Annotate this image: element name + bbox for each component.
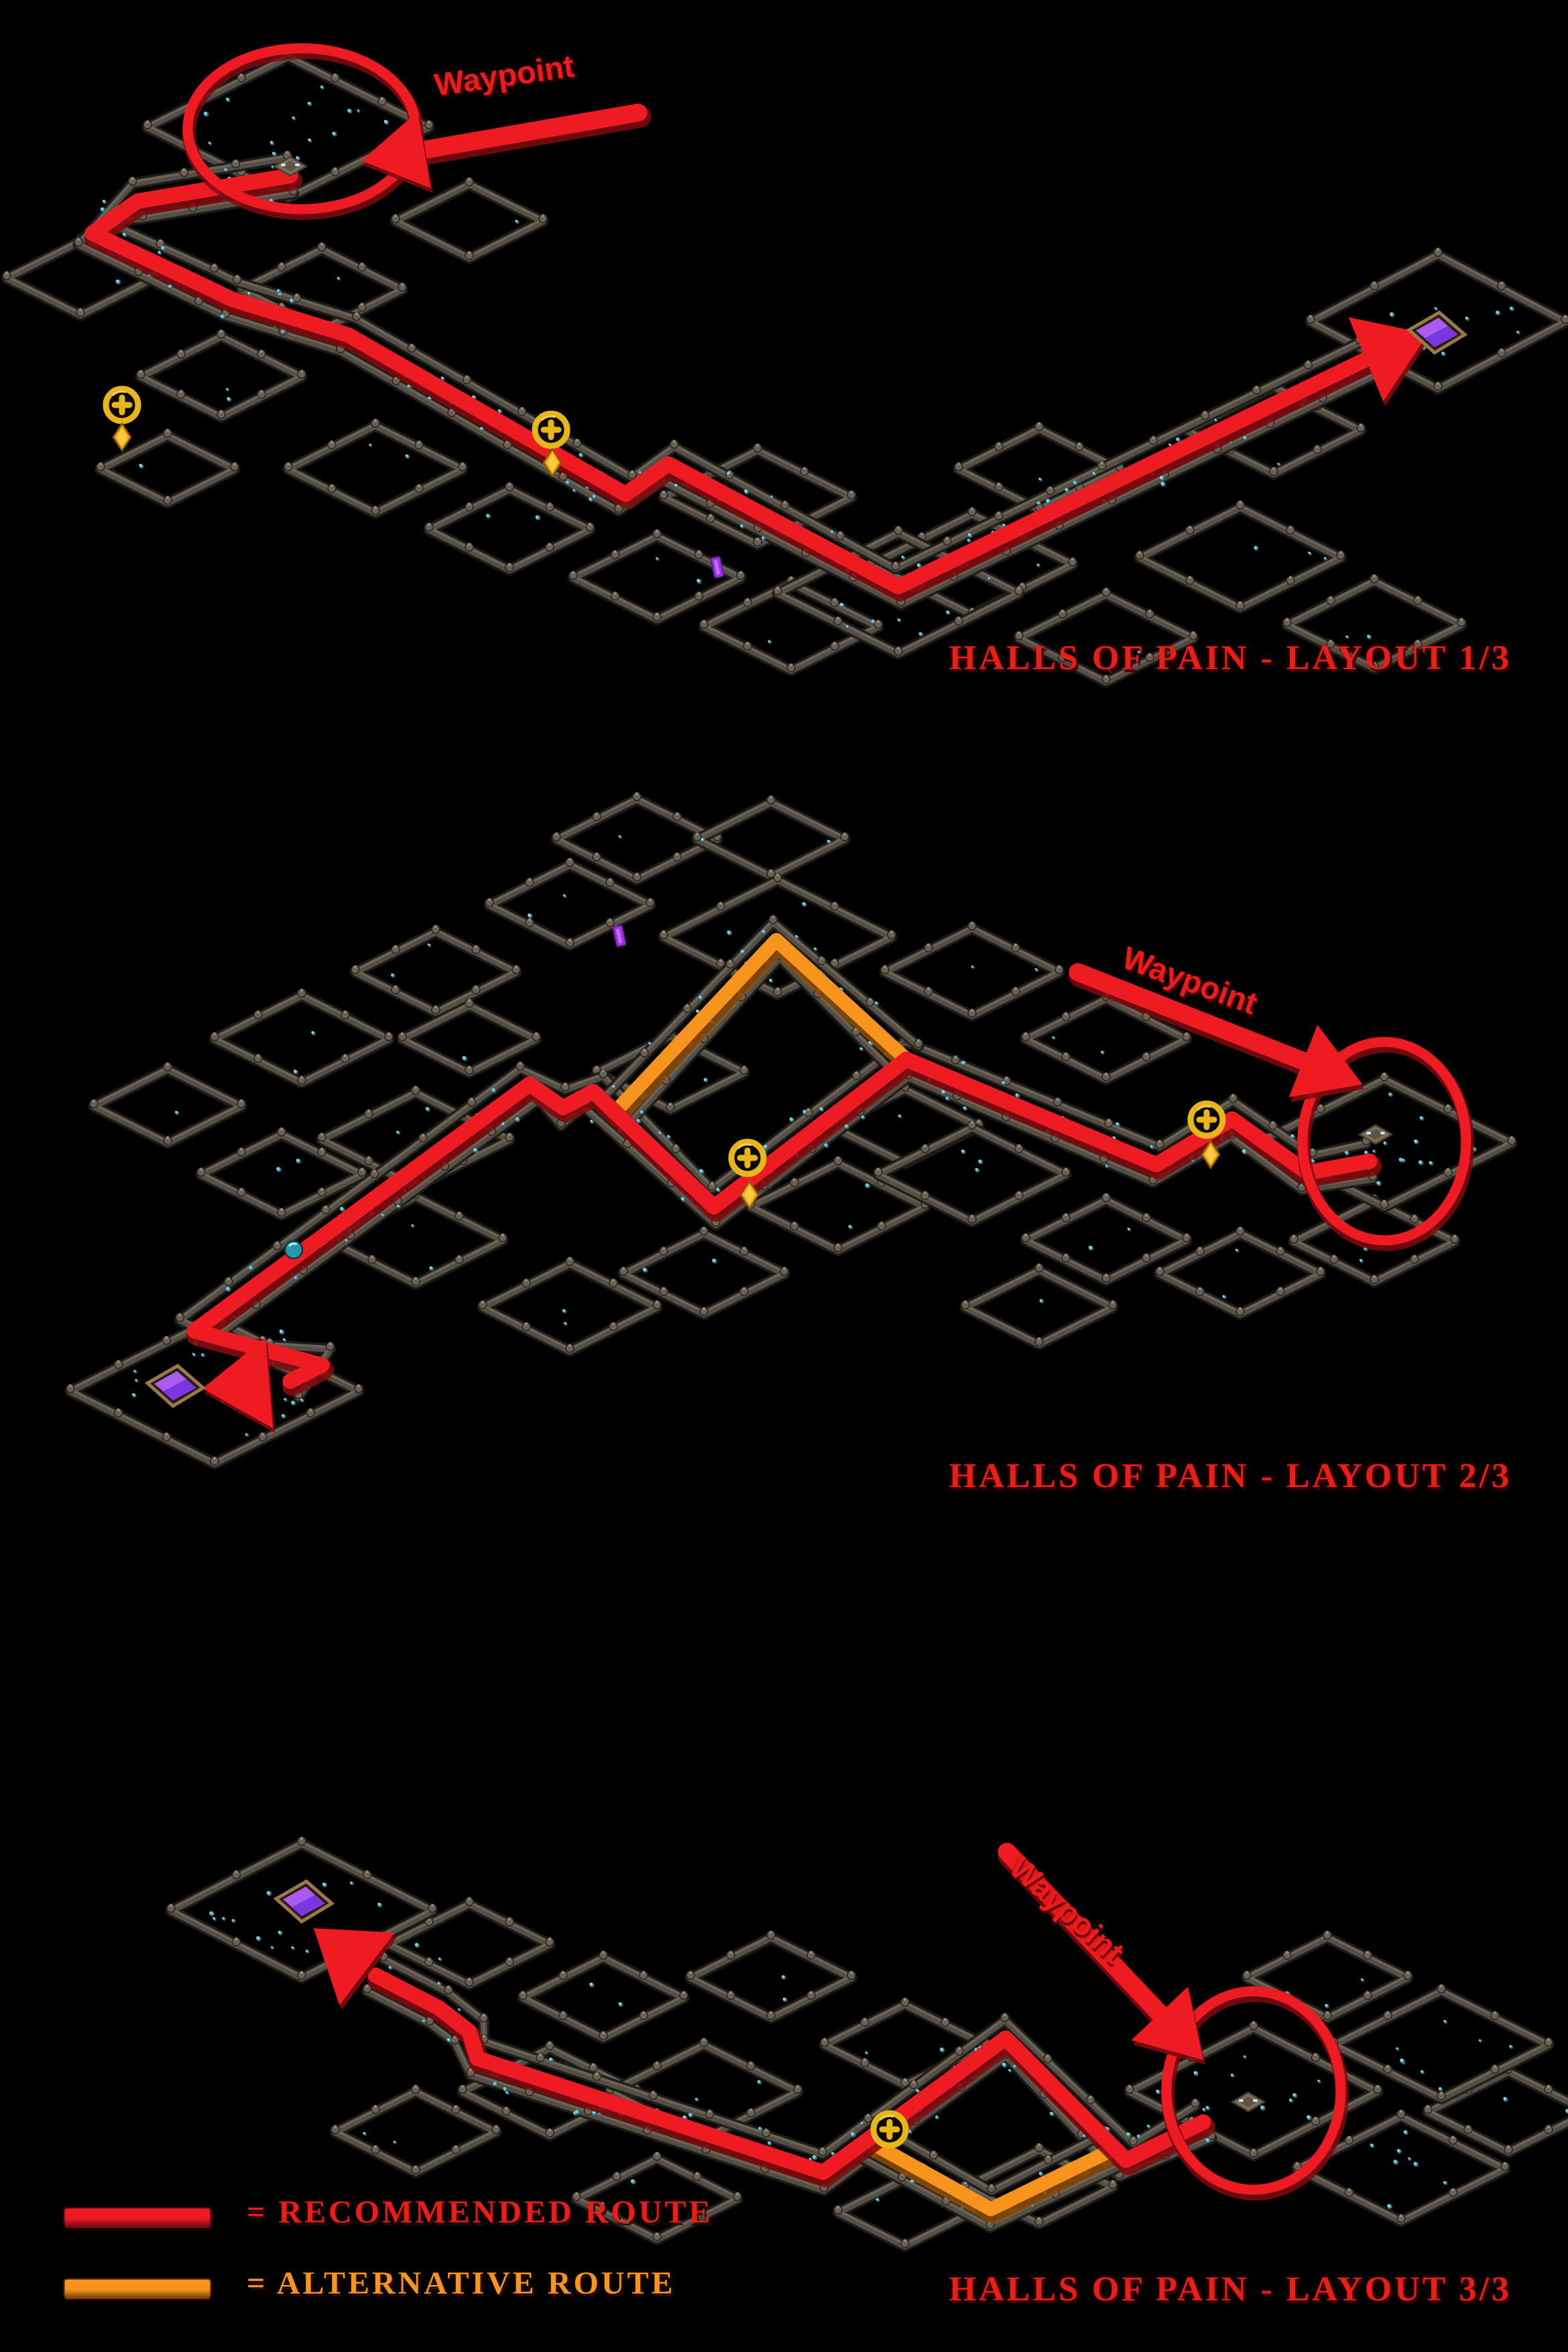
gold-diamond-icon bbox=[113, 424, 131, 451]
wall-pillar-tip bbox=[1504, 2162, 1506, 2165]
wall-segment-shadow bbox=[288, 426, 463, 513]
maps-canvas bbox=[0, 0, 1568, 2352]
wall-pillar-tip bbox=[387, 1033, 390, 1035]
wall-pillar-tip bbox=[602, 1951, 605, 1954]
wall-pillar-tip bbox=[1314, 2053, 1317, 2056]
wall-pillar-tip bbox=[475, 945, 477, 948]
wall-pillar-tip bbox=[131, 177, 133, 180]
wall-pillar-tip bbox=[877, 1168, 880, 1171]
wall-pillar-tip bbox=[1311, 1149, 1314, 1151]
wall-pillar-tip bbox=[213, 263, 215, 266]
wall-pillar-tip bbox=[1158, 1267, 1161, 1270]
wall-pillar-tip bbox=[1333, 1255, 1335, 1258]
wall-pillar-tip bbox=[971, 1215, 973, 1218]
wall-pillar-tip bbox=[1148, 609, 1151, 612]
wall-pillar-tip bbox=[93, 1100, 95, 1102]
wall-pillar-tip bbox=[286, 151, 288, 154]
wall-pillar-tip bbox=[1239, 1307, 1242, 1310]
wall-pillar-tip bbox=[166, 496, 169, 499]
wall-pillar-tip bbox=[508, 563, 511, 566]
wall-pillar-tip bbox=[1386, 2065, 1389, 2068]
wall-pillar-tip bbox=[743, 1066, 745, 1069]
shrine-icon bbox=[871, 2111, 908, 2148]
wall-pillar-tip bbox=[320, 243, 323, 245]
wall-pillar-tip bbox=[1360, 424, 1362, 426]
wall-pillar-tip bbox=[729, 1951, 732, 1954]
wall-pillar-tip bbox=[602, 1069, 605, 1072]
wall-segment-shadow bbox=[396, 184, 543, 258]
wall-pillar-tip bbox=[964, 1301, 967, 1303]
wall-pillar-tip bbox=[77, 238, 80, 241]
wall-pillar-tip bbox=[676, 853, 678, 856]
map-layout-3 bbox=[167, 1837, 1568, 2247]
wall-segment bbox=[523, 1958, 684, 2038]
wall-pillar-tip bbox=[697, 592, 700, 595]
wall-segment-shadow bbox=[402, 1006, 536, 1073]
wall-pillar-tip bbox=[944, 2018, 947, 2021]
wall-segment-top bbox=[396, 182, 543, 256]
wall-pillar-tip bbox=[609, 919, 611, 921]
wall-pillar-tip bbox=[843, 833, 846, 835]
wall-pillar-tip bbox=[1189, 526, 1191, 528]
wall-pillar-tip bbox=[1383, 1200, 1386, 1203]
wall-pillar-tip bbox=[1065, 1214, 1067, 1216]
wall-pillar-tip bbox=[234, 160, 237, 162]
wall-pillar-tip bbox=[1038, 422, 1040, 425]
wall-pillar-tip bbox=[1239, 1227, 1242, 1230]
wall-pillar-tip bbox=[1289, 576, 1292, 579]
wall-pillar-tip bbox=[589, 523, 591, 526]
wall-pillar-tip bbox=[1366, 1991, 1369, 1994]
wall-pillar-tip bbox=[300, 1837, 303, 1840]
wall-pillar-tip bbox=[548, 2129, 551, 2131]
wall-pillar-tip bbox=[820, 957, 823, 959]
wall-pillar-tip bbox=[233, 463, 236, 465]
wall-pillar-tip bbox=[736, 2192, 739, 2195]
map3-title: HALLS OF PAIN - LAYOUT 3/3 bbox=[949, 2270, 1512, 2309]
wall-pillar-tip bbox=[793, 1178, 796, 1181]
wall-pillar-tip bbox=[770, 870, 772, 872]
wall-pillar-tip bbox=[1185, 1033, 1188, 1035]
wall-pillar-tip bbox=[1376, 2085, 1379, 2088]
wall-pillar-tip bbox=[320, 1148, 323, 1151]
wall-pillar-tip bbox=[1413, 1215, 1416, 1218]
wall-segment bbox=[215, 996, 389, 1083]
wall-pillar-tip bbox=[971, 508, 973, 510]
wall-pillar-tip bbox=[837, 2206, 839, 2209]
wall-segment-top bbox=[141, 335, 302, 415]
wall-pillar-tip bbox=[320, 1133, 323, 1136]
wall-pillar-tip bbox=[1038, 1338, 1040, 1340]
wall-pillar-tip bbox=[823, 2038, 826, 2041]
wall-pillar-tip bbox=[365, 1871, 368, 1873]
wall-pillar-tip bbox=[1252, 2149, 1255, 2152]
wall-pillar-tip bbox=[240, 1148, 243, 1151]
wall-pillar-tip bbox=[912, 2080, 915, 2083]
wall-pillar-tip bbox=[1038, 2217, 1040, 2220]
wall-pillar-tip bbox=[592, 2063, 595, 2066]
wall-pillar-tip bbox=[837, 1244, 839, 1246]
wall-pillar-tip bbox=[1316, 445, 1319, 448]
wall-pillar-tip bbox=[894, 562, 897, 565]
wall-pillar-tip bbox=[595, 2072, 598, 2075]
wall-pillar-tip bbox=[235, 1938, 237, 1940]
wall-pillar-tip bbox=[1494, 2011, 1496, 2014]
wall-pillar-tip bbox=[971, 1009, 973, 1012]
wall-segment-top bbox=[215, 994, 389, 1081]
wall-pillar-tip bbox=[927, 943, 930, 946]
wall-pillar-tip bbox=[595, 1066, 598, 1069]
alternative-route-swatch bbox=[64, 2278, 211, 2299]
stairs-icon bbox=[276, 1881, 332, 1922]
wall-pillar-tip bbox=[300, 1971, 303, 1974]
wall-pillar-tip bbox=[1447, 1168, 1449, 1171]
wall-pillar-tip bbox=[1329, 596, 1332, 599]
wall-pillar-tip bbox=[612, 1322, 615, 1325]
wall-pillar-tip bbox=[508, 1958, 511, 1960]
wall-pillar-tip bbox=[300, 1076, 303, 1079]
wall-pillar-tip bbox=[711, 1182, 713, 1185]
wall-pillar-tip bbox=[227, 1277, 230, 1280]
wall-pillar-tip bbox=[615, 2172, 618, 2175]
wall-pillar-tip bbox=[519, 1062, 522, 1065]
wall-pillar-tip bbox=[548, 543, 551, 546]
wall-pillar-tip bbox=[1145, 1254, 1148, 1256]
wall-pillar-tip bbox=[613, 550, 616, 553]
wall-segment bbox=[690, 1938, 851, 2018]
wall-pillar-tip bbox=[703, 2038, 705, 2041]
wall-pillar-tip bbox=[1451, 2188, 1454, 2191]
wall-pillar-tip bbox=[1199, 1247, 1201, 1250]
wall-pillar-tip bbox=[1314, 2117, 1317, 2119]
recommended-route-swatch bbox=[64, 2207, 211, 2228]
wall-pillar-tip bbox=[796, 2085, 799, 2088]
wall-pillar-tip bbox=[99, 463, 102, 465]
wall-segment-top bbox=[402, 1004, 536, 1071]
wall-pillar-tip bbox=[1246, 1971, 1248, 1974]
wall-pillar-tip bbox=[367, 1157, 370, 1159]
recommended-route-label: = RECOMMENDED ROUTE bbox=[247, 2194, 713, 2231]
wall-segment-top bbox=[878, 1126, 1066, 1220]
wall-pillar-tip bbox=[790, 577, 792, 579]
wall-segment-shadow bbox=[965, 1271, 1113, 1344]
wall-pillar-tip bbox=[568, 939, 571, 941]
wall-pillar-tip bbox=[703, 1307, 705, 1310]
wall-pillar-tip bbox=[927, 987, 930, 990]
wall-pillar-tip bbox=[662, 491, 665, 493]
wall-pillar-tip bbox=[656, 2152, 658, 2155]
teal-marker-icon bbox=[285, 1241, 302, 1258]
wall-segment bbox=[1140, 508, 1341, 608]
wall-pillar-tip bbox=[1347, 2136, 1350, 2139]
wall-pillar-tip bbox=[1111, 1301, 1114, 1303]
wall-pillar-tip bbox=[917, 1039, 920, 1042]
wall-segment bbox=[396, 184, 543, 258]
wall-pillar-tip bbox=[1406, 1971, 1409, 1974]
wall-pillar-tip bbox=[166, 429, 169, 432]
wall-pillar-tip bbox=[1100, 461, 1103, 464]
wall-pillar-tip bbox=[548, 503, 551, 506]
wall-pillar-tip bbox=[756, 444, 759, 447]
wall-pillar-tip bbox=[361, 1168, 363, 1171]
wall-pillar-tip bbox=[280, 263, 283, 266]
wall-pillar-tip bbox=[642, 2011, 645, 2014]
wall-pillar-tip bbox=[1279, 1247, 1282, 1250]
wall-pillar-tip bbox=[662, 1247, 665, 1250]
wall-segment-shadow bbox=[335, 2092, 496, 2172]
wall-pillar-tip bbox=[180, 390, 182, 393]
wall-pillar-tip bbox=[220, 330, 223, 333]
wall-pillar-tip bbox=[810, 1951, 812, 1954]
wall-pillar-tip bbox=[1046, 2054, 1049, 2057]
wall-pillar-tip bbox=[609, 878, 611, 881]
wall-pillar-tip bbox=[1192, 632, 1195, 634]
wall-pillar-tip bbox=[1386, 2011, 1389, 2014]
wall-pillar-tip bbox=[394, 215, 397, 217]
wall-pillar-tip bbox=[1547, 2085, 1550, 2088]
wall-pillar-tip bbox=[468, 1897, 471, 1900]
wall-pillar-tip bbox=[328, 1342, 331, 1345]
wall-pillar-tip bbox=[776, 988, 779, 990]
wall-pillar-tip bbox=[749, 2062, 752, 2064]
wall-pillar-tip bbox=[401, 1033, 404, 1035]
wall-pillar-tip bbox=[373, 1169, 375, 1172]
wall-pillar-tip bbox=[300, 370, 303, 373]
wall-pillar-tip bbox=[394, 986, 397, 988]
wall-pillar-tip bbox=[461, 2085, 464, 2088]
wall-pillar-tip bbox=[520, 407, 523, 410]
wall-pillar-tip bbox=[833, 598, 836, 601]
wall-pillar-tip bbox=[783, 1267, 786, 1270]
wall-pillar-tip bbox=[739, 571, 742, 574]
wall-pillar-tip bbox=[1145, 1053, 1148, 1055]
wall-pillar-tip bbox=[890, 931, 893, 933]
wall-pillar-tip bbox=[374, 2105, 377, 2108]
wall-pillar-tip bbox=[708, 2110, 711, 2113]
wall-pillar-tip bbox=[1440, 1985, 1443, 1987]
wall-segment bbox=[402, 1006, 536, 1073]
wall-segment-shadow bbox=[215, 996, 389, 1083]
wall-pillar-tip bbox=[946, 537, 949, 540]
wall-pillar-tip bbox=[320, 1188, 323, 1191]
wall-segment-shadow bbox=[690, 1938, 851, 2018]
wall-pillar-tip bbox=[656, 2062, 658, 2064]
wall-pillar-tip bbox=[515, 965, 518, 968]
wall-pillar-tip bbox=[1366, 1951, 1369, 1954]
wall-pillar-tip bbox=[622, 1267, 625, 1270]
wall-pillar-tip bbox=[260, 350, 263, 353]
wall-pillar-tip bbox=[261, 1336, 263, 1339]
wall-pillar-tip bbox=[505, 2107, 507, 2109]
wall-pillar-tip bbox=[213, 1033, 216, 1035]
wall-pillar-tip bbox=[837, 617, 839, 620]
wall-segment-top bbox=[288, 424, 463, 511]
wall-pillar-tip bbox=[344, 1010, 347, 1013]
wall-pillar-tip bbox=[1089, 2096, 1091, 2099]
wall-segment-top bbox=[690, 1936, 851, 2016]
wall-pillar-tip bbox=[1111, 2180, 1114, 2183]
walls-layer bbox=[167, 1837, 1568, 2247]
wall-pillar-tip bbox=[1500, 349, 1503, 351]
wall-pillar-tip bbox=[470, 1098, 473, 1100]
wall-pillar-tip bbox=[447, 1986, 450, 1989]
wall-pillar-tip bbox=[770, 2011, 772, 2014]
wall-pillar-tip bbox=[697, 550, 700, 553]
wall-pillar-tip bbox=[649, 898, 652, 901]
shrine-icon bbox=[729, 1140, 766, 1176]
wall-pillar-tip bbox=[1018, 1191, 1020, 1194]
wall-pillar-tip bbox=[656, 2233, 658, 2235]
wall-pillar-tip bbox=[850, 1971, 853, 1974]
wall-pillar-tip bbox=[920, 532, 923, 535]
wall-pillar-tip bbox=[1326, 2011, 1329, 2014]
wall-pillar-tip bbox=[495, 2125, 497, 2128]
wall-pillar-tip bbox=[468, 251, 471, 254]
wall-pillar-tip bbox=[957, 463, 960, 465]
wall-pillar-tip bbox=[839, 532, 841, 534]
wall-pillar-tip bbox=[240, 1100, 243, 1102]
wall-pillar-tip bbox=[572, 571, 575, 574]
wall-pillar-tip bbox=[1056, 1098, 1059, 1100]
wall-pillar-tip bbox=[1416, 596, 1419, 599]
wall-segment-top bbox=[429, 487, 590, 568]
wall-pillar-tip bbox=[833, 902, 836, 904]
wall-pillar-tip bbox=[468, 999, 471, 1002]
wall-pillar-tip bbox=[971, 922, 973, 925]
wall-pillar-tip bbox=[300, 989, 303, 992]
wall-pillar-tip bbox=[180, 350, 182, 353]
wall-pillar-tip bbox=[1203, 411, 1206, 414]
wall-segment bbox=[94, 1069, 241, 1143]
wall-pillar-tip bbox=[924, 1191, 926, 1194]
map1-title: HALLS OF PAIN - LAYOUT 1/3 bbox=[949, 638, 1512, 678]
wall-pillar-tip bbox=[182, 168, 185, 171]
wall-pillar-tip bbox=[674, 1144, 677, 1147]
wall-segment-shadow bbox=[429, 489, 590, 570]
wall-pillar-tip bbox=[1038, 2143, 1040, 2146]
wall-pillar-tip bbox=[483, 2035, 485, 2038]
guide-image: HALLS OF PAIN - LAYOUT 1/3 HALLS OF PAIN… bbox=[0, 0, 1568, 2352]
wall-pillar-tip bbox=[1132, 2137, 1134, 2139]
wall-pillar-tip bbox=[1451, 2136, 1454, 2139]
wall-pillar-tip bbox=[468, 503, 471, 506]
shrine-icon bbox=[533, 412, 569, 448]
wall-pillar-tip bbox=[334, 168, 337, 170]
wall-pillar-tip bbox=[1145, 1214, 1148, 1216]
wall-segment bbox=[141, 337, 302, 417]
wall-pillar-tip bbox=[1065, 1053, 1067, 1055]
wall-pillar-tip bbox=[877, 620, 880, 623]
wall-pillar-tip bbox=[954, 1055, 957, 1058]
wall-pillar-tip bbox=[686, 1004, 688, 1007]
wall-pillar-tip bbox=[381, 97, 383, 100]
wall-segment-shadow bbox=[1140, 508, 1341, 608]
wall-pillar-tip bbox=[1400, 2110, 1402, 2113]
shrine-icon bbox=[1189, 1102, 1225, 1138]
wall-pillar-tip bbox=[1339, 551, 1342, 554]
wall-pillar-tip bbox=[1307, 361, 1309, 363]
wall-pillar-tip bbox=[287, 463, 290, 465]
wall-pillar-tip bbox=[1105, 588, 1107, 591]
wall-pillar-tip bbox=[863, 2058, 866, 2061]
wall-pillar-tip bbox=[562, 2011, 564, 2014]
portal-small-icon bbox=[613, 925, 626, 947]
wall-pillar-tip bbox=[178, 1313, 181, 1316]
wall-pillar-tip bbox=[461, 463, 464, 465]
wall-pillar-tip bbox=[1185, 1234, 1188, 1236]
wall-pillar-tip bbox=[904, 2078, 906, 2081]
map2-title: HALLS OF PAIN - LAYOUT 2/3 bbox=[949, 1456, 1512, 1496]
wall-pillar-tip bbox=[1286, 618, 1288, 621]
wall-pillar-tip bbox=[1138, 551, 1141, 554]
wall-pillar-tip bbox=[850, 491, 853, 493]
wall-pillar-tip bbox=[770, 796, 772, 799]
wall-pillar-tip bbox=[884, 965, 886, 968]
wall-pillar-tip bbox=[1286, 1951, 1288, 1954]
wall-pillar-tip bbox=[240, 74, 243, 76]
wall-pillar-tip bbox=[1014, 943, 1017, 946]
wall-pillar-tip bbox=[612, 1279, 615, 1281]
wall-segment-top bbox=[885, 927, 1059, 1014]
wall-segment bbox=[355, 932, 516, 1012]
wall-pillar-tip bbox=[743, 1247, 745, 1250]
wall-pillar-tip bbox=[1437, 248, 1439, 251]
wall-pillar-tip bbox=[643, 1049, 646, 1051]
wall-pillar-tip bbox=[1373, 1275, 1376, 1278]
wall-pillar-tip bbox=[1447, 1104, 1449, 1107]
wall-pillar-tip bbox=[1194, 2099, 1197, 2102]
wall-pillar-tip bbox=[1347, 2188, 1350, 2191]
wall-pillar-tip bbox=[1021, 583, 1024, 585]
wall-pillar-tip bbox=[682, 1991, 685, 1994]
wall-pillar-tip bbox=[548, 1938, 551, 1940]
wall-pillar-tip bbox=[568, 1257, 571, 1260]
wall-pillar-tip bbox=[652, 2091, 654, 2094]
wall-pillar-tip bbox=[1071, 558, 1074, 561]
wall-pillar-tip bbox=[431, 1904, 434, 1907]
wall-pillar-tip bbox=[508, 483, 511, 485]
wall-pillar-tip bbox=[1309, 315, 1312, 318]
wall-segment bbox=[885, 929, 1059, 1016]
wall-pillar-tip bbox=[235, 1871, 237, 1873]
wall-pillar-tip bbox=[1413, 1255, 1416, 1258]
wall-pillar-tip bbox=[1383, 1073, 1386, 1075]
wall-pillar-tip bbox=[1296, 2162, 1299, 2165]
wall-pillar-tip bbox=[833, 959, 836, 961]
wall-pillar-tip bbox=[772, 915, 774, 918]
wall-pillar-tip bbox=[501, 1234, 504, 1236]
wall-pillar-tip bbox=[1038, 1264, 1040, 1267]
wall-pillar-tip bbox=[200, 1168, 202, 1171]
wall-pillar-tip bbox=[1128, 2085, 1131, 2088]
wall-pillar-tip bbox=[924, 1144, 926, 1147]
wall-pillar-tip bbox=[1152, 436, 1154, 439]
wall-pillar-tip bbox=[401, 283, 404, 286]
wall-pillar-tip bbox=[1319, 1267, 1322, 1270]
wall-pillar-tip bbox=[257, 1010, 259, 1013]
wall-pillar-tip bbox=[1373, 575, 1376, 577]
wall-pillar-tip bbox=[1018, 587, 1020, 589]
wall-pillar-tip bbox=[904, 1998, 906, 2001]
wall-pillar-tip bbox=[257, 1054, 259, 1057]
wall-pillar-tip bbox=[1005, 1077, 1008, 1079]
wall-pillar-tip bbox=[595, 853, 598, 856]
wall-pillar-tip bbox=[296, 294, 298, 296]
wall-pillar-tip bbox=[765, 2129, 768, 2131]
wall-pillar-tip bbox=[1279, 1287, 1282, 1290]
wall-pillar-tip bbox=[428, 523, 430, 526]
wall-pillar-tip bbox=[897, 647, 900, 650]
